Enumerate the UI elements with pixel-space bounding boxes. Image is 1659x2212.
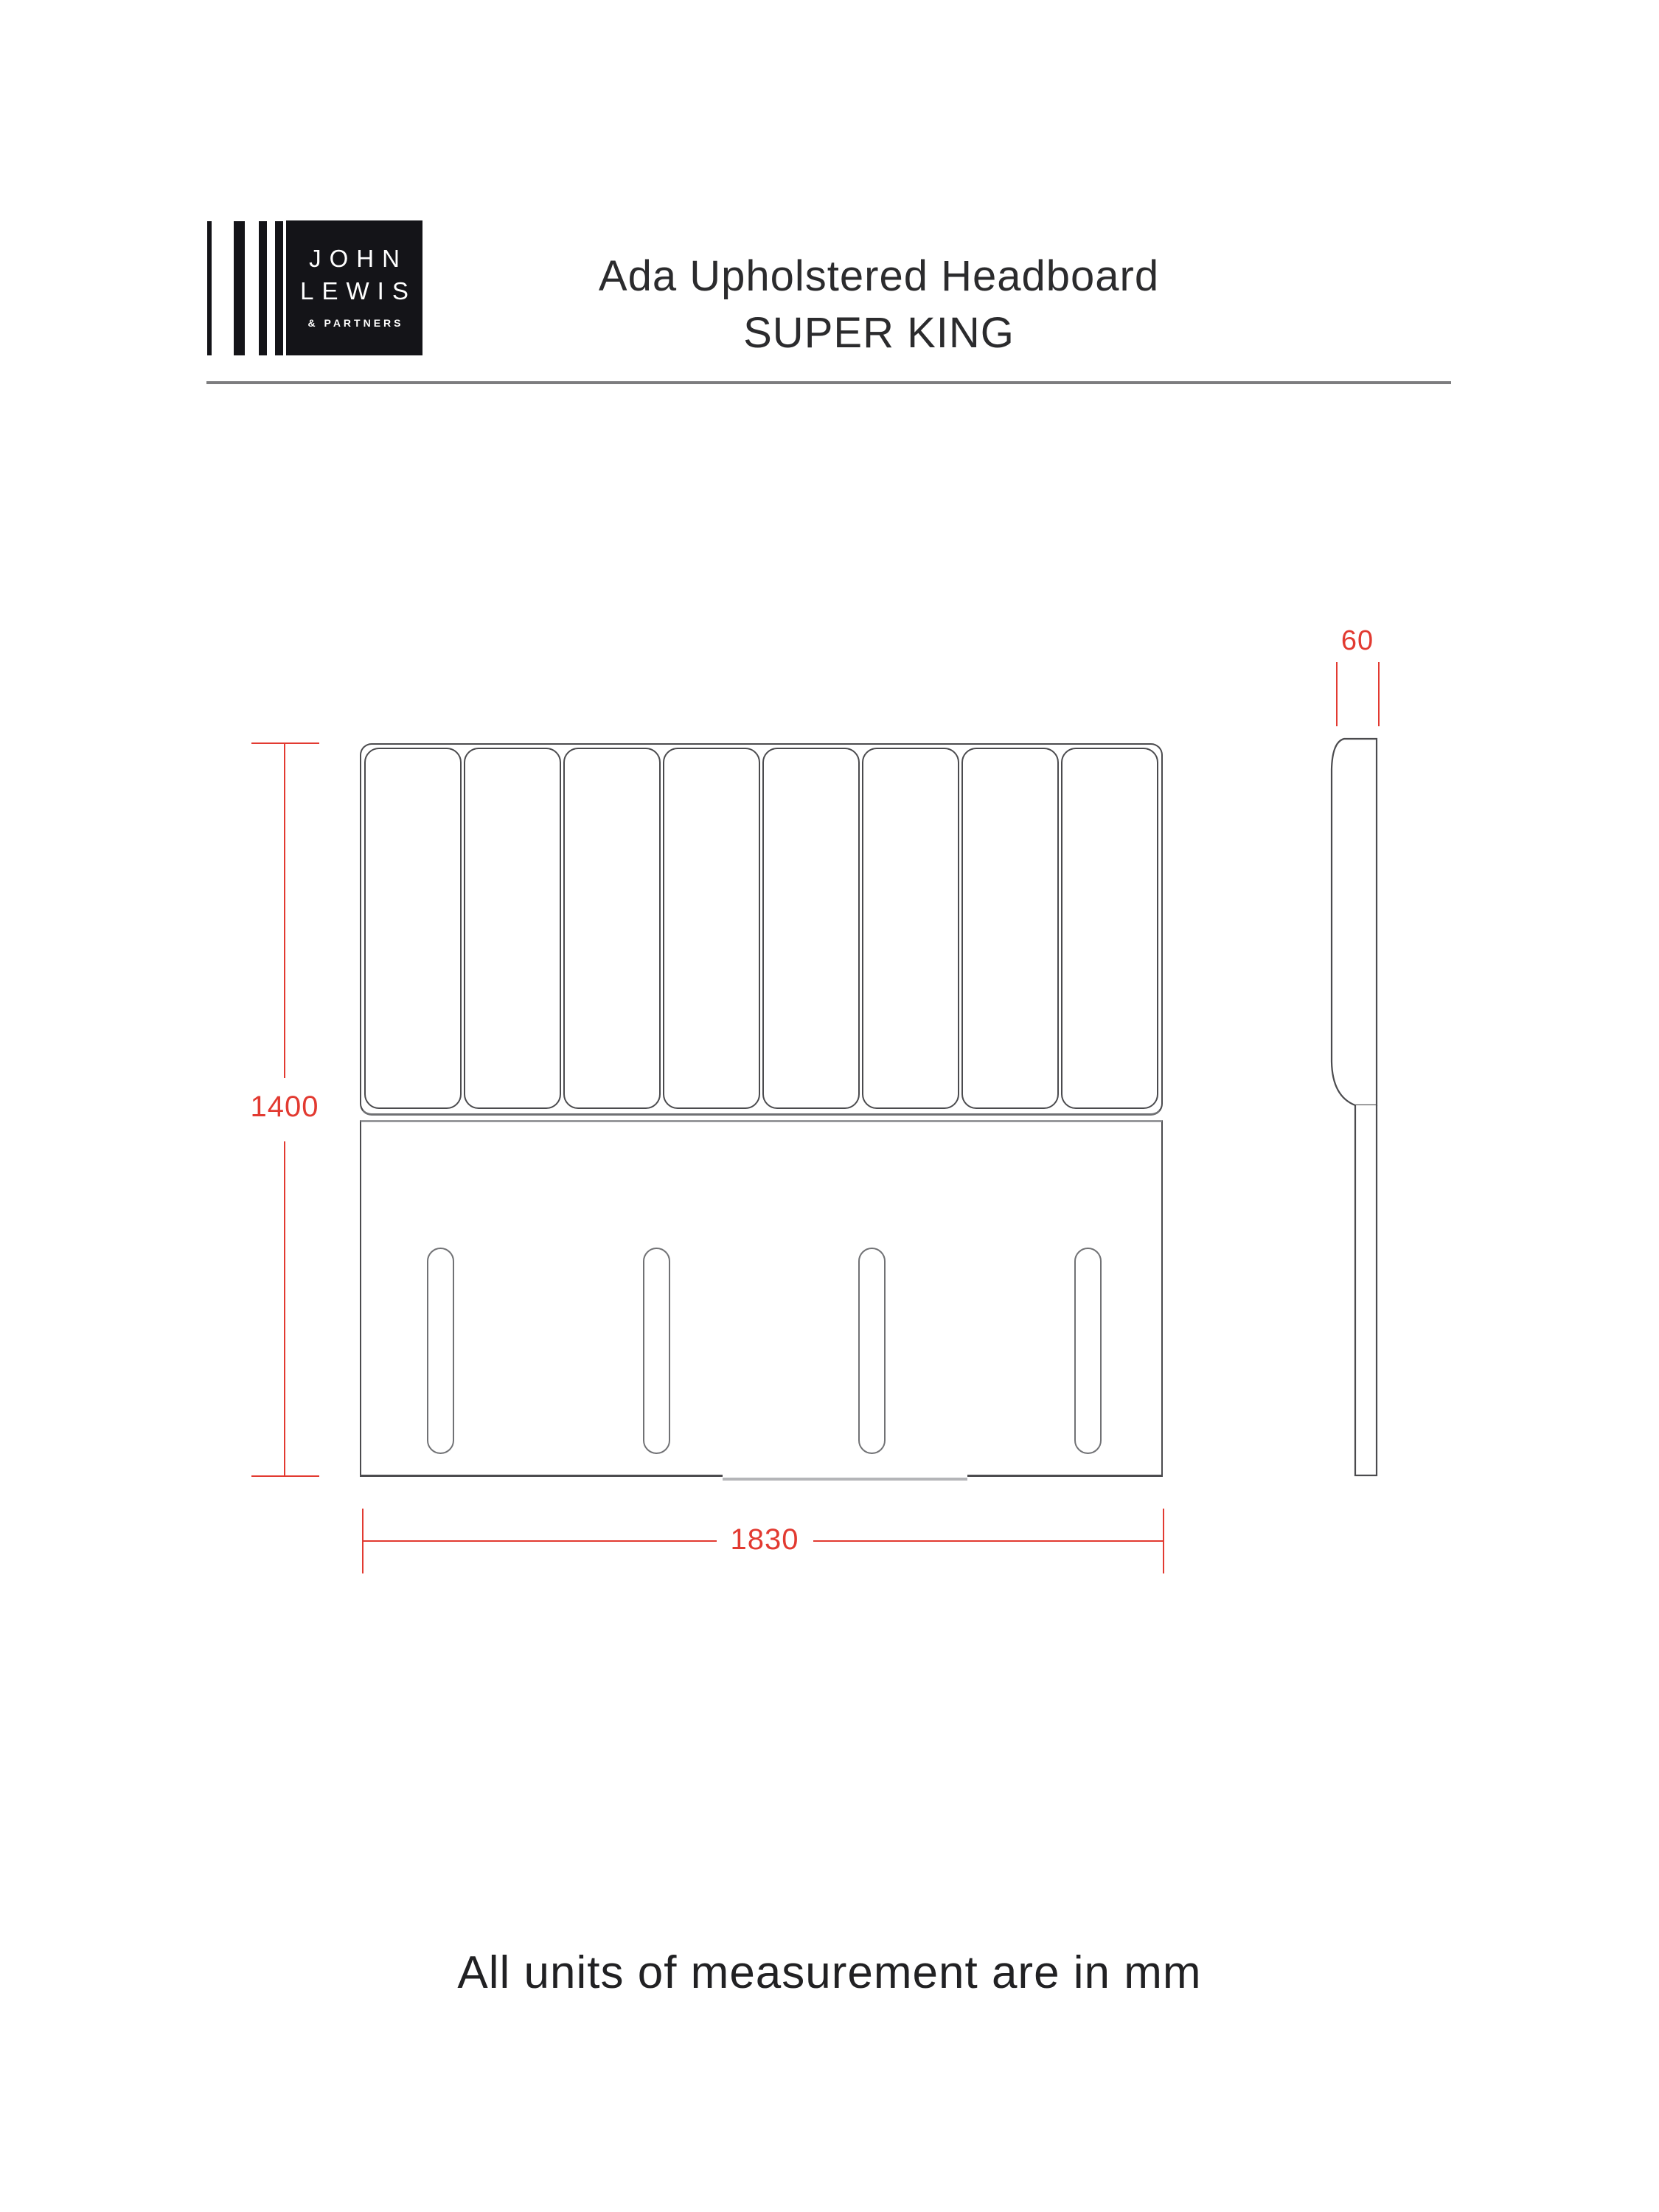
fixing-slot: [427, 1248, 454, 1454]
logo-bar-icon: [259, 221, 267, 355]
fixing-slot: [1074, 1248, 1102, 1454]
fixing-slot: [643, 1248, 670, 1454]
tufted-panel: [663, 748, 760, 1109]
tufted-panel: [961, 748, 1059, 1109]
width-dim-label: 1830: [691, 1523, 838, 1557]
units-note: All units of measurement are in mm: [0, 1947, 1659, 1999]
product-name: Ada Upholstered Headboard: [418, 248, 1340, 305]
board-bottom-rebate: [723, 1478, 967, 1481]
headboard-front-lower-board: [360, 1120, 1163, 1476]
side-padded-profile: [1332, 739, 1377, 1105]
logo-text-lewis: LEWIS: [292, 275, 417, 307]
page-title: Ada Upholstered Headboard SUPER KING: [418, 248, 1340, 361]
tufted-panel: [762, 748, 860, 1109]
depth-dim-ext-left: [1336, 662, 1338, 726]
height-dim-line-lower: [284, 1141, 285, 1476]
height-dim-tick-top: [251, 742, 319, 744]
tufted-panel: [563, 748, 661, 1109]
height-dim-tick-bottom: [251, 1475, 319, 1477]
logo-text-partners: & PARTNERS: [305, 312, 404, 334]
height-dim-label: 1400: [226, 1091, 344, 1124]
board-bottom-edge-right: [967, 1475, 1163, 1477]
depth-dim-ext-right: [1378, 662, 1380, 726]
headboard-front-tufted-section: [360, 743, 1163, 1116]
tufted-panel: [862, 748, 959, 1109]
width-dim-tick-left: [362, 1509, 364, 1573]
board-bottom-edge-left: [360, 1475, 723, 1477]
headboard-side-view: [1320, 734, 1388, 1480]
side-leg-strut: [1355, 1105, 1377, 1475]
logo-bar-icon: [207, 221, 212, 355]
header-divider: [206, 381, 1451, 384]
product-size: SUPER KING: [418, 305, 1340, 361]
width-dim-line-left: [363, 1540, 717, 1542]
fixing-slot: [858, 1248, 886, 1454]
logo-text-john: JOHN: [301, 243, 408, 275]
height-dim-line-upper: [284, 743, 285, 1078]
depth-dim-label: 60: [1321, 625, 1394, 657]
tufted-panel: [464, 748, 561, 1109]
width-dim-line-right: [813, 1540, 1164, 1542]
spec-sheet-page: JOHN LEWIS & PARTNERS Ada Upholstered He…: [0, 0, 1659, 2212]
logo-bar-icon: [275, 221, 283, 355]
tufted-panel: [364, 748, 462, 1109]
width-dim-tick-right: [1163, 1509, 1164, 1573]
logo-square: JOHN LEWIS & PARTNERS: [286, 220, 422, 355]
logo-bar-icon: [234, 221, 245, 355]
tufted-panel: [1061, 748, 1158, 1109]
